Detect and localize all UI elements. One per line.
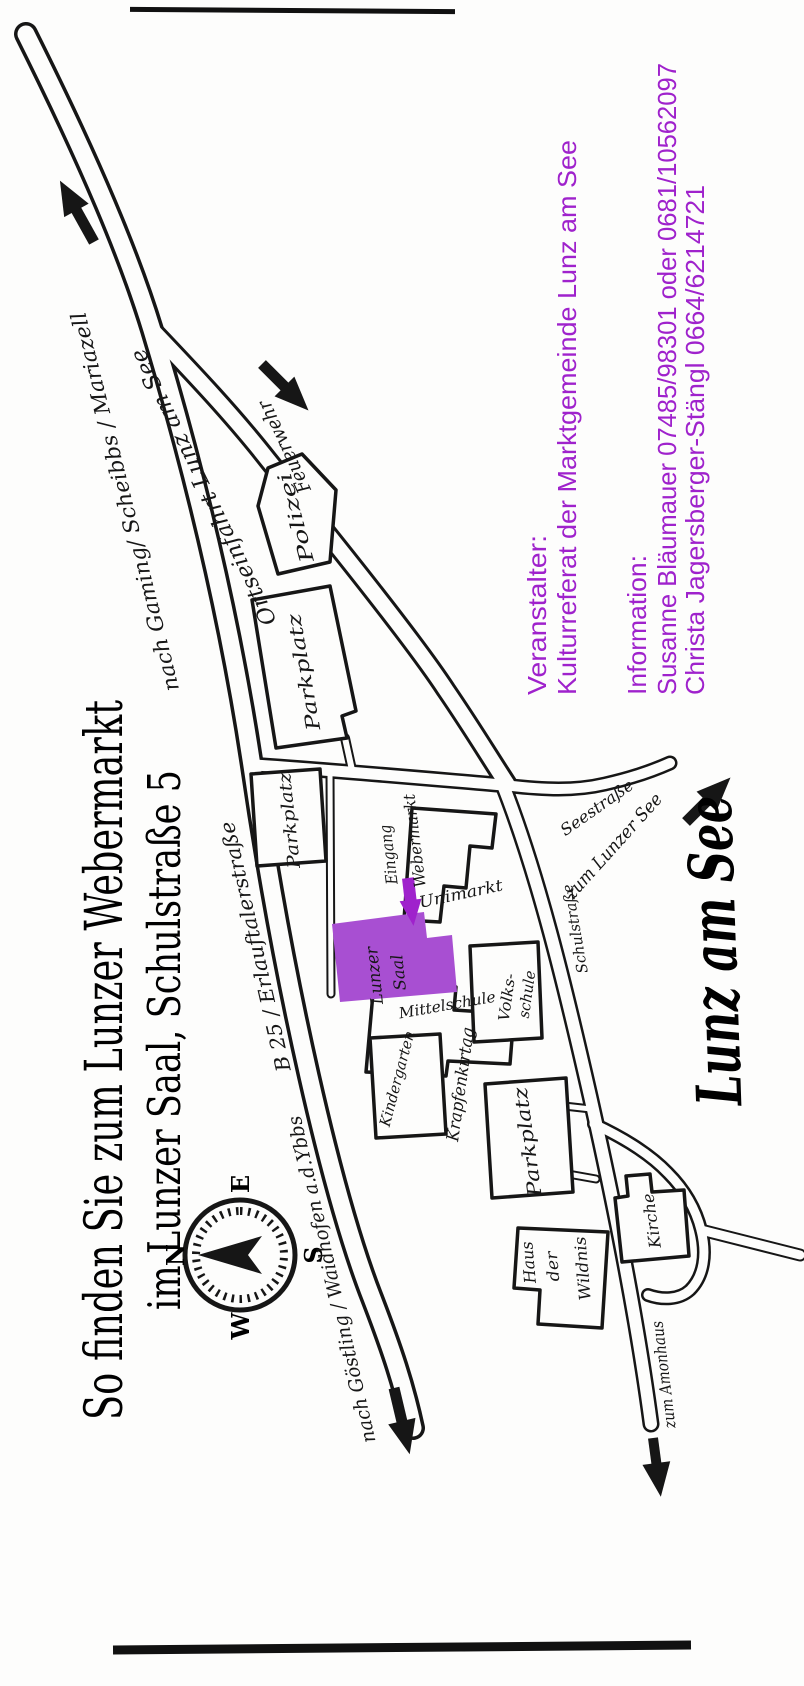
rotated-map-canvas: N E S W So finden Sie zum Lunzer Weberma… <box>0 0 804 1686</box>
contact-block: Veranstalter: Kulturreferat der Marktgem… <box>522 63 710 695</box>
scanned-flyer-page: N E S W So finden Sie zum Lunzer Weberma… <box>0 0 804 1686</box>
compass-w: W <box>226 1311 255 1340</box>
organizer-text: Kulturreferat der Marktgemeinde Lunz am … <box>552 140 582 695</box>
title-block: So finden Sie zum Lunzer Webermarkt im L… <box>75 700 191 1420</box>
lunz-am-see-map: N E S W So finden Sie zum Lunzer Weberma… <box>0 0 804 1686</box>
arrow-to-amonhaus <box>653 1438 657 1468</box>
label-lunzer-saal-2: Saal <box>387 954 410 992</box>
label-wildnis-1: Haus <box>517 1241 540 1285</box>
town-name: Lunz am See <box>673 795 757 1109</box>
page-title-line1: So finden Sie zum Lunzer Webermarkt <box>75 700 135 1420</box>
arrow-to-gaming <box>74 206 94 242</box>
information-heading: Information: <box>622 555 652 695</box>
information-line1: Susanne Bläumauer 07485/98301 oder 0681/… <box>652 63 682 695</box>
label-eingang: Eingang <box>375 824 401 887</box>
road-south <box>701 1230 800 1255</box>
information-line2: Christa Jagersberger-Stängl 0664/6214721 <box>680 185 710 695</box>
compass-e: E <box>226 1175 255 1193</box>
label-wildnis-2: der <box>542 1249 564 1282</box>
page-title-line2: im Lunzer Saal, Schulstraße 5 <box>138 770 191 1310</box>
organizer-heading: Veranstalter: <box>522 535 552 695</box>
arrow-ortseinfahrt <box>262 364 288 390</box>
road-lane <box>330 771 331 994</box>
